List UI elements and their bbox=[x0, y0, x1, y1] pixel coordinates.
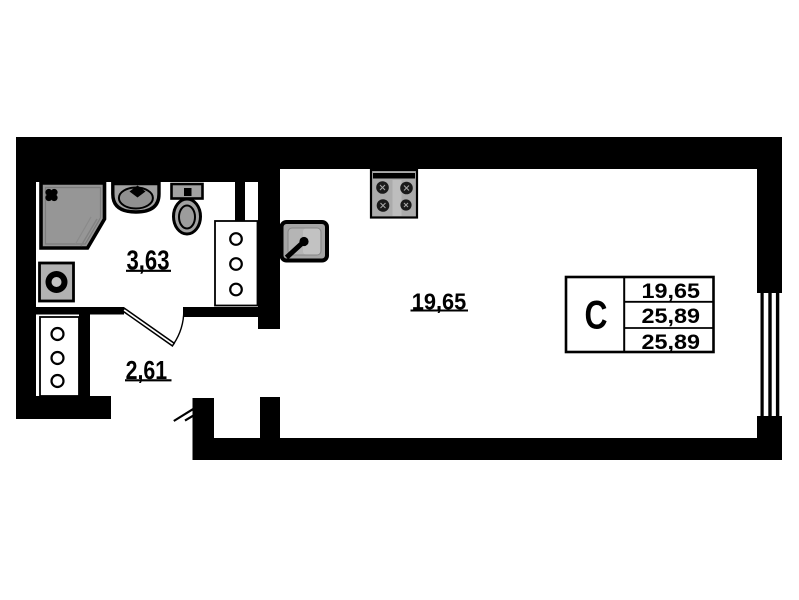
svg-text:25,89: 25,89 bbox=[642, 331, 701, 354]
svg-text:C: C bbox=[585, 294, 608, 338]
svg-text:25,89: 25,89 bbox=[642, 305, 701, 328]
svg-text:19,65: 19,65 bbox=[642, 280, 701, 303]
